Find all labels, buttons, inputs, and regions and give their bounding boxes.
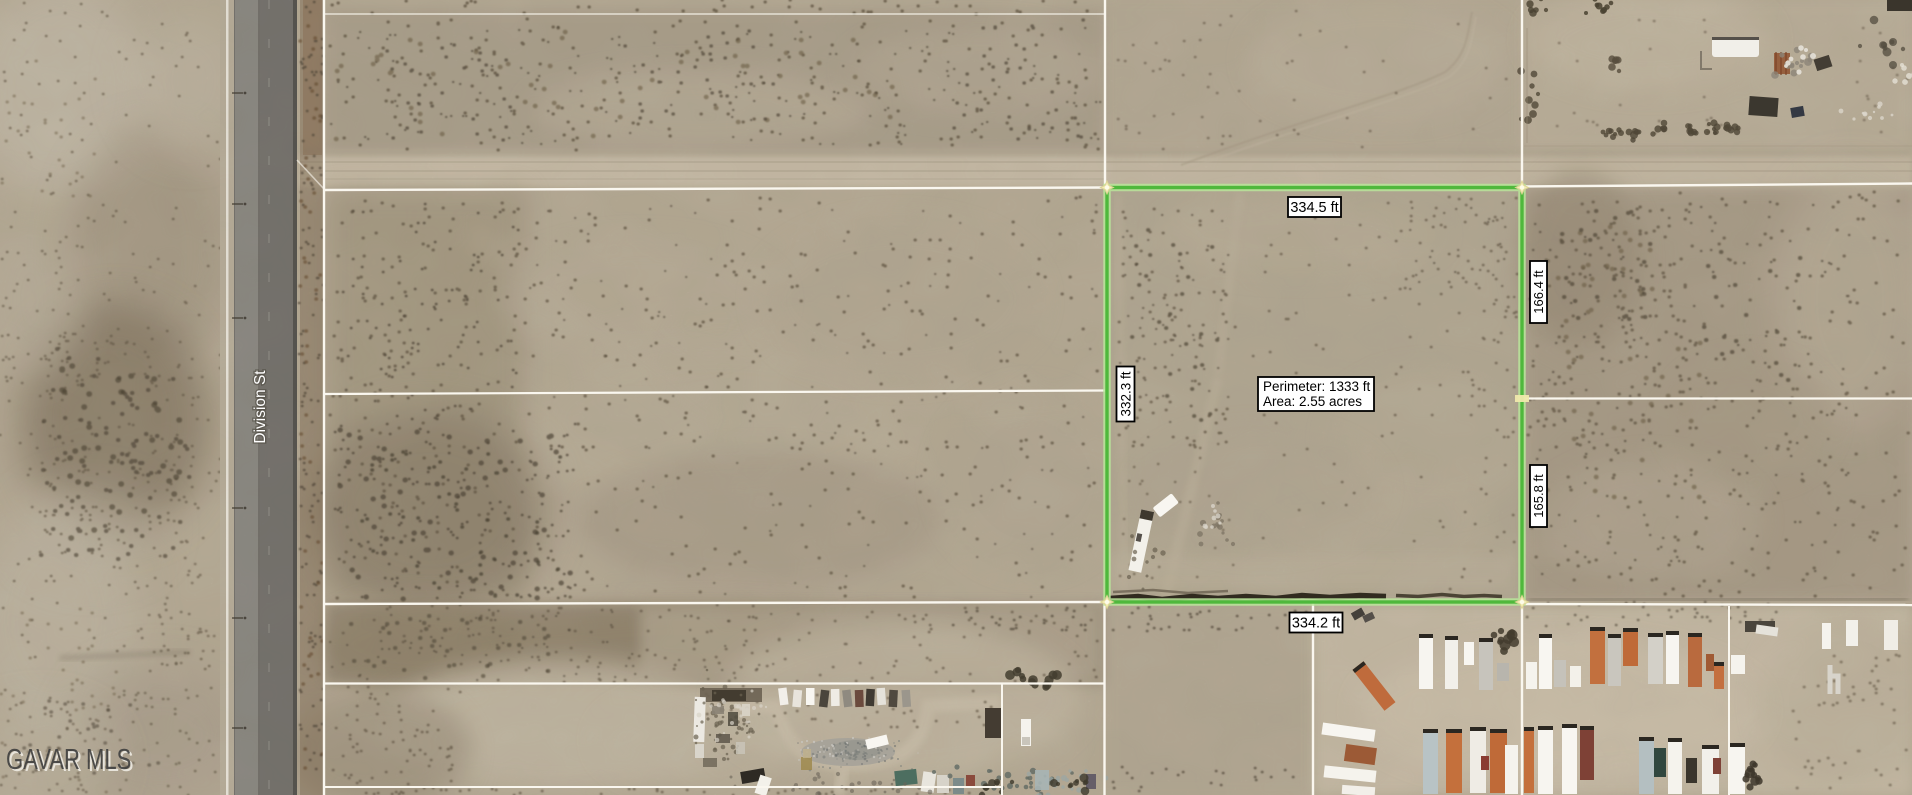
svg-text:332.3 ft: 332.3 ft (1118, 371, 1133, 416)
svg-text:Perimeter: 1333 ft: Perimeter: 1333 ft (1263, 379, 1371, 394)
svg-text:334.2 ft: 334.2 ft (1292, 616, 1340, 632)
svg-text:334.5 ft: 334.5 ft (1290, 200, 1338, 216)
svg-text:Division St: Division St (252, 370, 269, 444)
svg-text:Area: 2.55 acres: Area: 2.55 acres (1263, 394, 1362, 409)
svg-text:166.4 ft: 166.4 ft (1531, 270, 1546, 314)
svg-text:165.8 ft: 165.8 ft (1531, 474, 1546, 518)
svg-text:GAVAR MLS: GAVAR MLS (6, 744, 131, 776)
